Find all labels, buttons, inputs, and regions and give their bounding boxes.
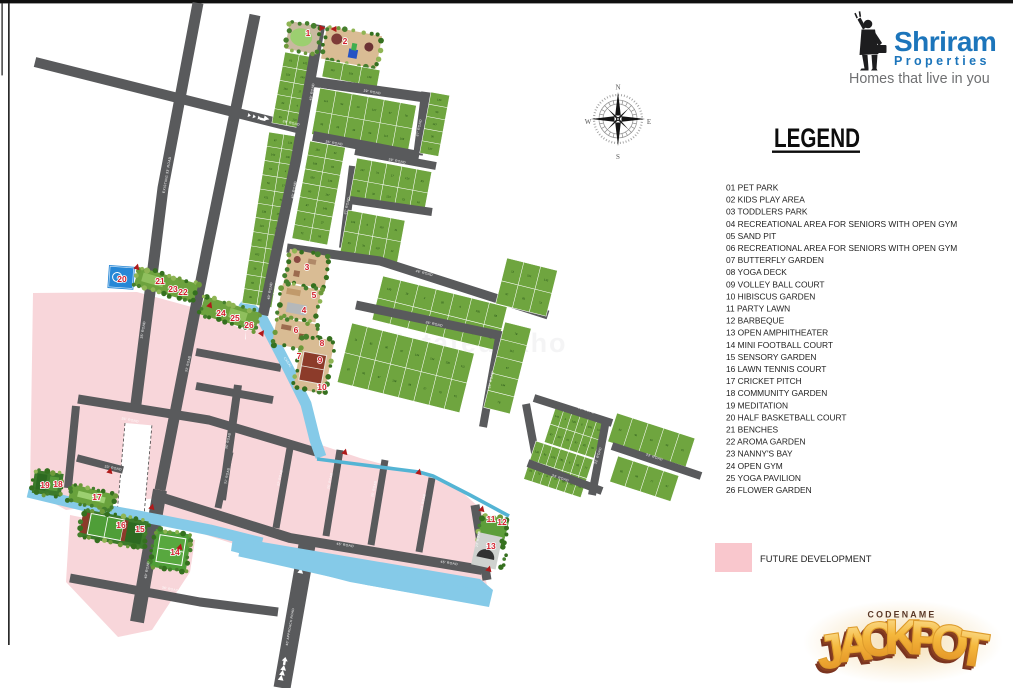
svg-text:LEGEND: LEGEND bbox=[774, 123, 860, 153]
svg-text:23 NANNY'S BAY: 23 NANNY'S BAY bbox=[726, 449, 793, 459]
svg-text:03 TODDLERS PARK: 03 TODDLERS PARK bbox=[726, 207, 808, 217]
svg-text:22: 22 bbox=[178, 287, 188, 297]
svg-text:02 KIDS PLAY AREA: 02 KIDS PLAY AREA bbox=[726, 195, 805, 205]
svg-text:17: 17 bbox=[92, 492, 102, 502]
svg-text:26 FLOWER GARDEN: 26 FLOWER GARDEN bbox=[726, 485, 812, 495]
svg-text:19: 19 bbox=[40, 480, 50, 490]
svg-text:8: 8 bbox=[320, 338, 325, 348]
svg-text:Homes that live in you: Homes that live in you bbox=[849, 71, 990, 87]
svg-text:16 LAWN TENNIS COURT: 16 LAWN TENNIS COURT bbox=[726, 364, 826, 374]
svg-text:N: N bbox=[615, 84, 620, 92]
svg-text:18 COMMUNITY GARDEN: 18 COMMUNITY GARDEN bbox=[726, 388, 827, 398]
svg-text:12 BARBEQUE: 12 BARBEQUE bbox=[726, 316, 785, 326]
svg-text:01 PET PARK: 01 PET PARK bbox=[726, 183, 779, 193]
svg-text:13: 13 bbox=[486, 541, 496, 551]
svg-text:7: 7 bbox=[297, 351, 302, 361]
svg-text:08 YOGA DECK: 08 YOGA DECK bbox=[726, 267, 787, 277]
svg-text:5: 5 bbox=[312, 290, 317, 300]
svg-text:10: 10 bbox=[317, 382, 327, 392]
svg-text:11 PARTY LAWN: 11 PARTY LAWN bbox=[726, 304, 790, 314]
svg-text:14 MINI FOOTBALL COURT: 14 MINI FOOTBALL COURT bbox=[726, 340, 833, 350]
svg-text:16: 16 bbox=[116, 520, 126, 530]
svg-text:19 MEDITATION: 19 MEDITATION bbox=[726, 400, 788, 410]
svg-text:15 SENSORY GARDEN: 15 SENSORY GARDEN bbox=[726, 352, 816, 362]
svg-text:W: W bbox=[585, 118, 592, 126]
svg-text:23: 23 bbox=[168, 284, 178, 294]
svg-text:07 BUTTERFLY GARDEN: 07 BUTTERFLY GARDEN bbox=[726, 255, 824, 265]
svg-text:20 HALF BASKETBALL COURT: 20 HALF BASKETBALL COURT bbox=[726, 412, 847, 422]
svg-text:25: 25 bbox=[230, 313, 240, 323]
svg-text:6: 6 bbox=[294, 325, 299, 335]
svg-text:09 VOLLEY BALL COURT: 09 VOLLEY BALL COURT bbox=[726, 279, 825, 289]
svg-text:FUTURE DEVELOPMENT: FUTURE DEVELOPMENT bbox=[760, 553, 872, 564]
svg-text:21 BENCHES: 21 BENCHES bbox=[726, 425, 779, 435]
svg-text:12: 12 bbox=[497, 517, 507, 527]
svg-text:S: S bbox=[616, 153, 620, 161]
svg-text:4: 4 bbox=[302, 305, 307, 315]
svg-text:06 RECREATIONAL AREA FOR SENIO: 06 RECREATIONAL AREA FOR SENIORS WITH OP… bbox=[726, 243, 957, 253]
svg-text:11: 11 bbox=[487, 514, 496, 524]
svg-text:Shriram: Shriram bbox=[894, 26, 996, 57]
svg-text:18: 18 bbox=[53, 479, 63, 489]
svg-text:10 HIBISCUS GARDEN: 10 HIBISCUS GARDEN bbox=[726, 291, 815, 301]
svg-text:04 RECREATIONAL AREA FOR SENIO: 04 RECREATIONAL AREA FOR SENIORS WITH OP… bbox=[726, 219, 957, 229]
svg-text:22 AROMA GARDEN: 22 AROMA GARDEN bbox=[726, 437, 806, 447]
svg-text:Properties: Properties bbox=[894, 54, 990, 68]
svg-text:05 SAND PIT: 05 SAND PIT bbox=[726, 231, 776, 241]
svg-text:2: 2 bbox=[343, 36, 348, 46]
svg-text:26: 26 bbox=[244, 320, 254, 330]
svg-text:3: 3 bbox=[305, 262, 310, 272]
svg-text:13 OPEN AMPHITHEATER: 13 OPEN AMPHITHEATER bbox=[726, 328, 828, 338]
svg-text:24: 24 bbox=[216, 308, 226, 318]
svg-text:17 CRICKET PITCH: 17 CRICKET PITCH bbox=[726, 376, 802, 386]
svg-text:20: 20 bbox=[117, 274, 127, 284]
svg-text:25 YOGA PAVILION: 25 YOGA PAVILION bbox=[726, 473, 801, 483]
svg-text:15: 15 bbox=[135, 524, 145, 534]
svg-text:1: 1 bbox=[306, 28, 311, 38]
svg-text:E: E bbox=[647, 118, 651, 126]
svg-text:9: 9 bbox=[318, 355, 323, 365]
svg-text:24 OPEN GYM: 24 OPEN GYM bbox=[726, 461, 783, 471]
svg-text:21: 21 bbox=[155, 276, 165, 286]
